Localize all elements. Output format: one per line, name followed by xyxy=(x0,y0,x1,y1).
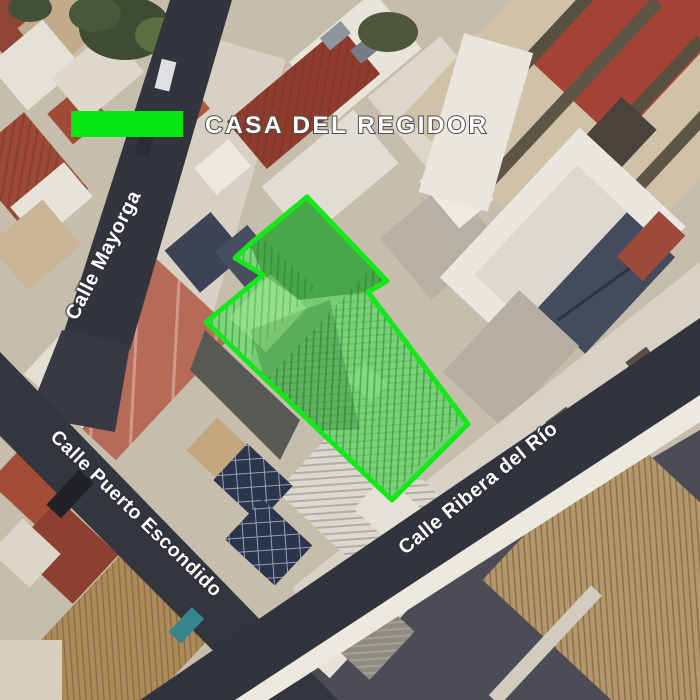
legend: CASA DEL REGIDOR xyxy=(71,111,488,139)
map-canvas[interactable]: Calle Mayorga Calle Puerto Escondido Cal… xyxy=(0,0,700,700)
legend-title: CASA DEL REGIDOR xyxy=(205,112,488,139)
roof-white xyxy=(0,640,62,700)
legend-swatch xyxy=(71,111,183,137)
tree xyxy=(358,12,418,52)
satellite-map[interactable]: Calle Mayorga Calle Puerto Escondido Cal… xyxy=(0,0,700,700)
